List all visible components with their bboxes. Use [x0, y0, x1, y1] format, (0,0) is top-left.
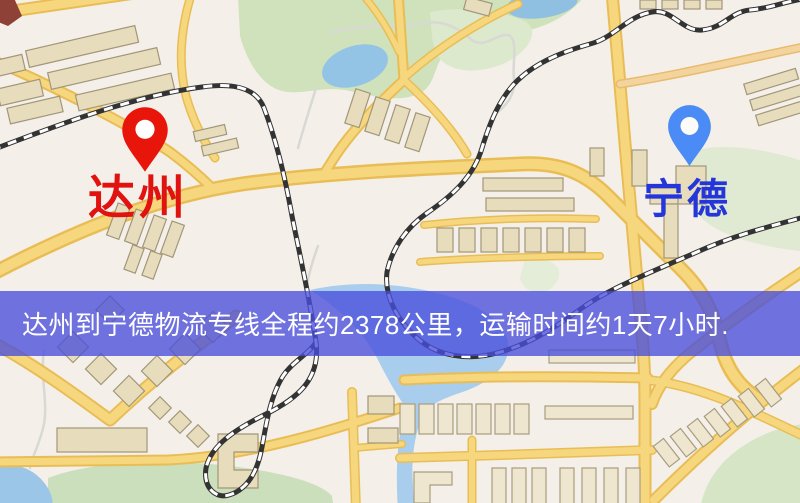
origin-label: 达州	[88, 176, 188, 223]
route-info-text: 达州到宁德物流专线全程约2378公里，运输时间约1天7小时.	[0, 305, 729, 342]
destination-pin-icon	[667, 104, 712, 167]
route-info-banner: 达州到宁德物流专线全程约2378公里，运输时间约1天7小时.	[0, 291, 800, 356]
map-screenshot: 达州 宁德 达州到宁德物流专线全程约2378公里，运输时间约1天7小时.	[0, 0, 800, 503]
map-background	[0, 0, 800, 503]
origin-pin-icon	[121, 106, 169, 173]
destination-label: 宁德	[643, 179, 731, 220]
